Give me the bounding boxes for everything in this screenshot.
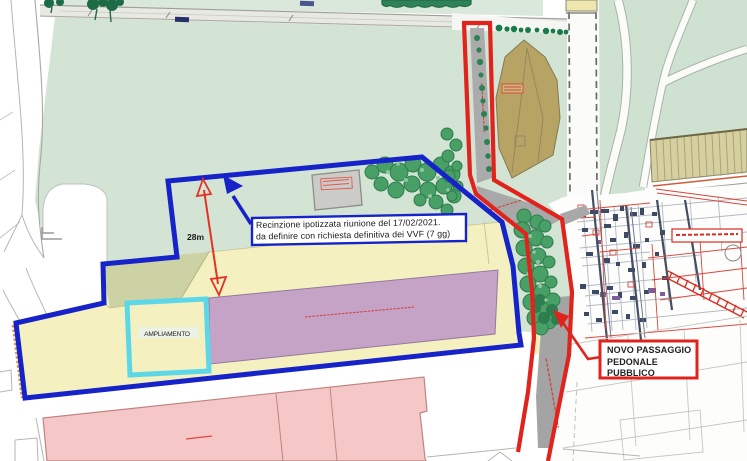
svg-text:PEDONALE: PEDONALE [607, 357, 658, 367]
svg-text:PUBBLICO: PUBBLICO [607, 368, 655, 378]
svg-text:NOVO PASSAGGIO: NOVO PASSAGGIO [607, 345, 691, 355]
svg-text:AMPLIAMENTO: AMPLIAMENTO [144, 331, 190, 338]
svg-text:28m: 28m [187, 232, 204, 242]
